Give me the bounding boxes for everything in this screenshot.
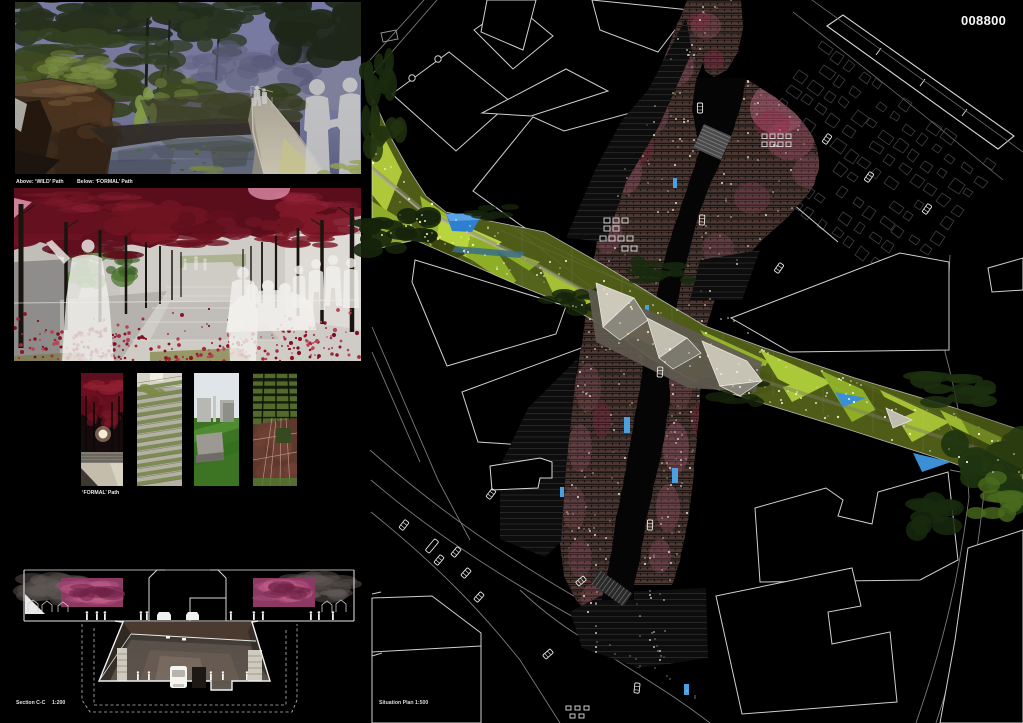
svg-text:1:200: 1:200 [52, 700, 65, 706]
svg-text:Situation Plan 1:500: Situation Plan 1:500 [379, 700, 428, 706]
svg-text:‘FORMAL’ Path: ‘FORMAL’ Path [82, 490, 119, 496]
svg-text:Above: ‘WILD’ Path: Above: ‘WILD’ Path [16, 179, 64, 185]
svg-text:Section C-C: Section C-C [16, 700, 46, 706]
svg-text:008800: 008800 [961, 13, 1006, 28]
svg-text:Below: ‘FORMAL’ Path: Below: ‘FORMAL’ Path [77, 179, 133, 185]
